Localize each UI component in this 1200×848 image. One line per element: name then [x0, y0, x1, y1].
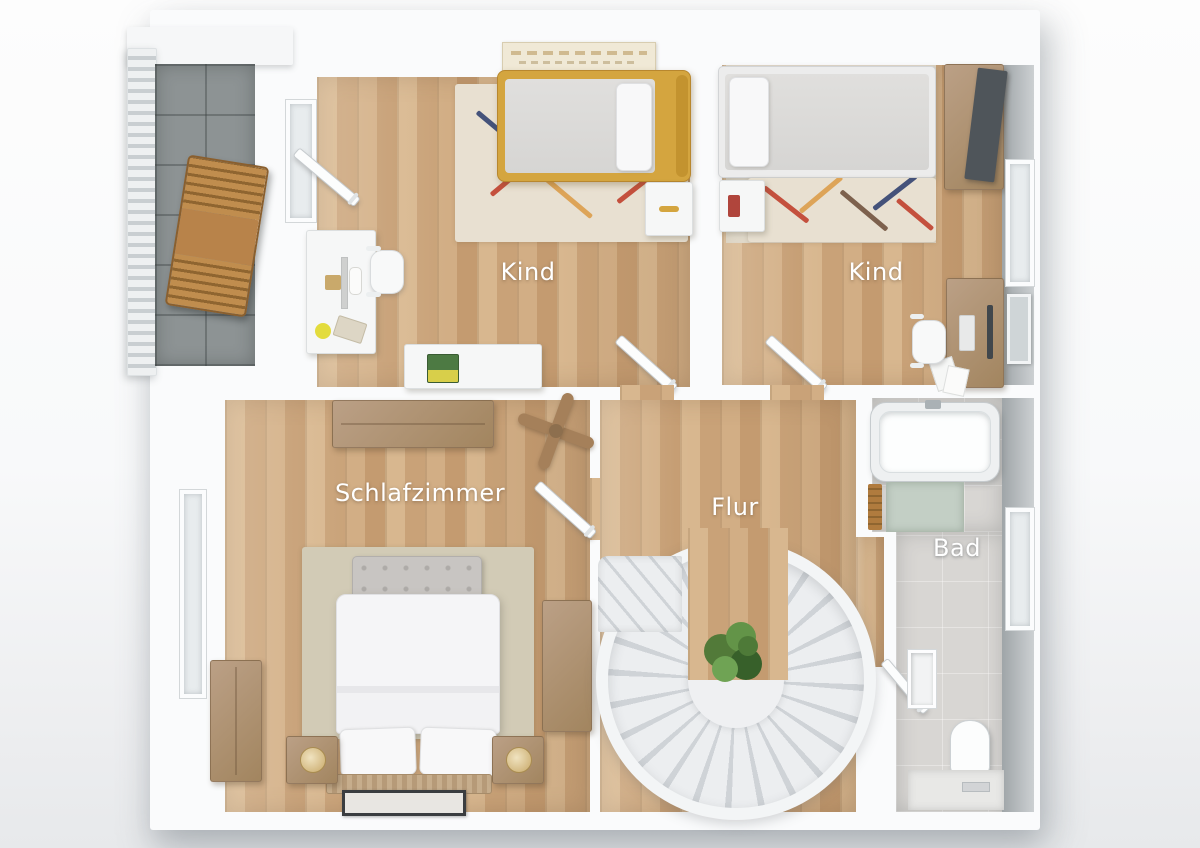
- desk-yellow-ball: [315, 323, 331, 339]
- bathtub-faucet: [925, 400, 941, 409]
- bath-glass-panel: [886, 482, 964, 532]
- chair-armrest: [910, 314, 924, 319]
- bath-wood-mat: [868, 484, 882, 530]
- potted-plant: [698, 618, 768, 688]
- stair-straight-steps: [598, 556, 682, 632]
- kind2-window: [1006, 160, 1034, 286]
- toilet: [950, 720, 990, 774]
- kind1-nightstand: [645, 182, 693, 236]
- nightstand-handle: [659, 206, 679, 212]
- chair-seat: [912, 320, 946, 364]
- table-lamp: [506, 747, 532, 773]
- double-bed: [336, 594, 498, 794]
- room-label-schlafzimmer: Schlafzimmer: [335, 479, 505, 507]
- dresser-drawer-line: [341, 423, 485, 425]
- bedside-mat: [342, 790, 466, 816]
- lounger-legrest: [167, 254, 252, 316]
- wall-niche-shelf: [908, 650, 936, 708]
- kind1-sideboard: [404, 344, 542, 389]
- game-box: [427, 354, 459, 383]
- chair-seat: [370, 250, 404, 294]
- ceiling-fan: [516, 391, 596, 471]
- desk-keyboard: [959, 315, 975, 351]
- nightstand-left: [286, 736, 338, 784]
- kind1-bed-headboard: [676, 75, 688, 177]
- shower-floor: [908, 770, 1004, 810]
- bad-window: [1006, 508, 1034, 630]
- desk-bottle: [349, 267, 362, 295]
- kind1-office-chair: [366, 242, 406, 300]
- bedroom-dresser: [332, 400, 494, 448]
- table-lamp: [300, 747, 326, 773]
- desk-wood-block: [325, 275, 341, 290]
- spiral-staircase: [596, 540, 876, 820]
- desk-monitor-dark: [987, 305, 993, 359]
- floor-plan-render: Kind Kind: [0, 0, 1200, 848]
- bed-duvet: [336, 594, 500, 734]
- kind2-rug: [748, 178, 936, 242]
- chair-armrest: [366, 246, 381, 251]
- wall-art: [502, 42, 656, 72]
- desk-book: [332, 315, 367, 344]
- room-label-kind-1: Kind: [501, 258, 556, 286]
- shower-drain: [962, 782, 990, 792]
- balcony-railing: [127, 48, 157, 376]
- cabinet-door-line: [235, 667, 237, 775]
- kind2-wall-mirror: [1007, 294, 1031, 364]
- bed-pillow-left: [339, 727, 417, 778]
- room-label-kind-2: Kind: [849, 258, 904, 286]
- nightstand-right: [492, 736, 544, 784]
- kind2-bed-pillow: [729, 77, 769, 167]
- desk-monitor: [341, 257, 348, 309]
- kind1-bed-pillow: [616, 83, 652, 171]
- room-label-flur: Flur: [711, 493, 759, 521]
- kind2-desk: [946, 278, 1004, 388]
- kind2-office-chair: [908, 312, 948, 370]
- wall-art-pattern2: [519, 61, 639, 64]
- wardrobe-dark-panel: [964, 68, 1007, 183]
- bedroom-tall-cabinet: [210, 660, 262, 782]
- balcony: [127, 27, 293, 375]
- wall-art-pattern: [511, 51, 647, 55]
- bedroom-wardrobe: [542, 600, 592, 732]
- kind2-sidetable: [719, 180, 765, 232]
- red-book: [728, 195, 740, 217]
- chair-armrest: [910, 363, 924, 368]
- fan-hub: [549, 424, 563, 438]
- bathtub: [870, 402, 1000, 482]
- room-label-bad: Bad: [933, 534, 981, 562]
- kind2-single-bed: [718, 66, 936, 178]
- chair-armrest: [366, 292, 381, 297]
- kind1-single-bed: [497, 70, 691, 182]
- kind2-wardrobe: [944, 64, 1004, 190]
- bathtub-basin: [879, 411, 991, 473]
- bed-pillow-right: [419, 727, 497, 778]
- schlafzimmer-window: [180, 490, 206, 698]
